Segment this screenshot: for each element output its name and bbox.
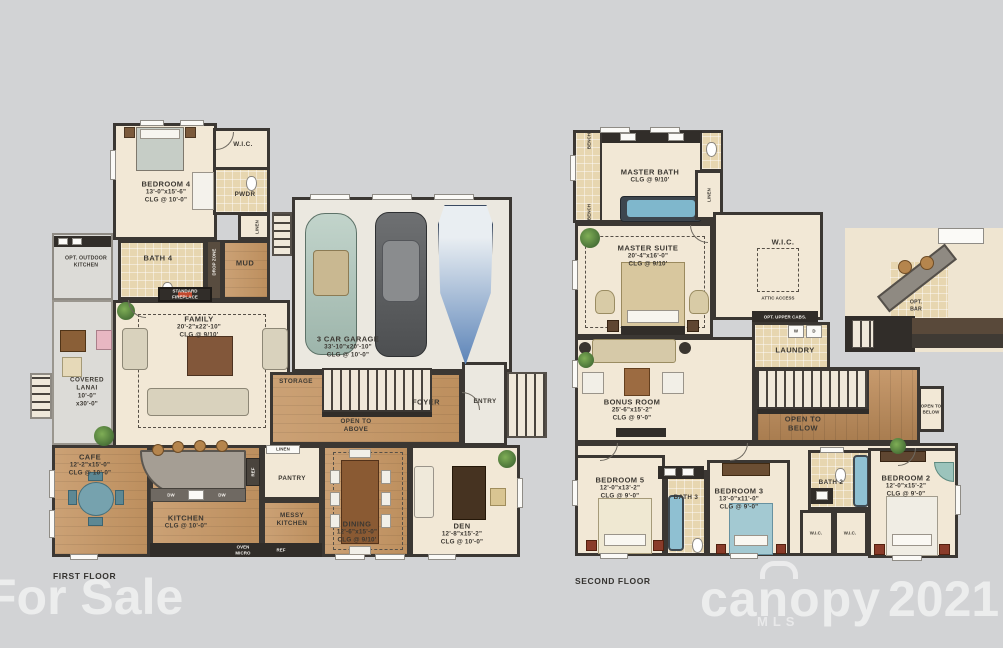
cafe-chair: [68, 490, 77, 505]
plant: [580, 228, 600, 248]
label-ref-island: REF: [250, 467, 256, 476]
foyer-text: FOYER: [412, 397, 440, 406]
sink: [682, 468, 694, 476]
headboard: [621, 326, 685, 335]
attic-access-text: ATTIC ACCESS: [761, 295, 794, 300]
pantry-text: PANTRY: [278, 475, 306, 482]
label-bath3: BATH 3: [674, 494, 699, 502]
bedroom5-name: BEDROOM 5: [595, 475, 644, 484]
bedroom2-clg: CLG @ 9'-0": [881, 491, 930, 499]
outdoor-sink: [72, 238, 82, 245]
cafe-table: [78, 482, 114, 516]
bed-pillows: [140, 129, 180, 139]
side-table: [679, 342, 691, 354]
label-bath2: BATH 2: [819, 479, 844, 487]
nightstand: [716, 544, 726, 554]
label-bedroom2: BEDROOM 2 12'-0"x15'-2" CLG @ 9'-0": [881, 473, 930, 498]
master-bath-clg: CLG @ 9/10': [620, 177, 680, 185]
bedroom5-clg: CLG @ 9'-0": [595, 493, 644, 501]
window: [434, 194, 474, 200]
dw1-text: DW: [167, 492, 175, 497]
nightstand: [586, 540, 597, 551]
armchair: [595, 290, 615, 314]
bedroom5-dims: 12'-0"x13'-2": [595, 485, 644, 493]
bath2-text: BATH 2: [819, 479, 844, 486]
ref-island-text: REF: [250, 467, 255, 476]
family-name: FAMILY: [177, 314, 221, 323]
bed-pillows: [892, 534, 932, 546]
car-seats: [313, 250, 349, 296]
label-master-suite: MASTER SUITE 20'-4"x16'-0" CLG @ 9/10': [618, 243, 679, 268]
window: [517, 478, 523, 508]
opt-outdoor-kitchen-text: OPT. OUTDOOR KITCHEN: [65, 256, 107, 269]
label-dining: DINING 12'-6"x15'-0" CLG @ 9/10': [337, 519, 377, 544]
dining-chair: [330, 470, 340, 484]
cafe-chair: [115, 490, 124, 505]
label-linen-pantry: LINEN: [276, 446, 290, 452]
stool: [172, 441, 184, 453]
armchair: [262, 328, 288, 370]
wic2-text: W.I.C.: [844, 530, 857, 535]
window: [570, 155, 576, 181]
armchair: [662, 372, 684, 394]
bed-pillows: [627, 310, 679, 323]
window: [955, 485, 961, 515]
nightstand: [607, 320, 619, 332]
dryer-text: D: [812, 328, 815, 333]
washer-text: W: [794, 328, 798, 333]
label-drop-zone: DROP ZONE: [211, 249, 217, 276]
garage-dims: 33'-10"x20'-10": [317, 344, 379, 352]
bedroom3-name: BEDROOM 3: [714, 486, 763, 495]
second-floor-caption: SECOND FLOOR: [575, 576, 651, 586]
family-dims: 20'-2"x22'-10": [177, 324, 221, 332]
lanai-name: COVERED LANAI: [61, 376, 113, 392]
plant: [498, 450, 516, 468]
label-pantry: PANTRY: [278, 475, 306, 483]
sink: [664, 468, 676, 476]
linen-hall-text: LINEN: [254, 220, 259, 234]
tub-water: [627, 200, 695, 217]
car-roof: [382, 240, 420, 302]
bedroom4-name: BEDROOM 4: [141, 179, 190, 188]
open-to-below-small-text: OPEN TO BELOW: [921, 404, 941, 415]
label-wic1: W.I.C.: [810, 530, 823, 536]
bonus-sofa: [592, 339, 676, 363]
label-open-to-above: OPEN TO ABOVE: [333, 418, 379, 434]
label-bench2: BENCH: [586, 204, 592, 220]
toilet: [706, 142, 717, 157]
label-messy-kitchen: MESSY KITCHEN: [270, 512, 314, 528]
sink: [620, 133, 636, 141]
den-sofa: [414, 466, 434, 518]
dining-chair: [349, 449, 371, 458]
dw2-text: DW: [218, 492, 226, 497]
bedroom3-dims: 13'-0"x11'-0": [714, 496, 763, 504]
garage-name: 3 CAR GARAGE: [317, 334, 379, 343]
bed-pillows: [734, 535, 768, 546]
lanai-chair: [96, 330, 112, 350]
label-bedroom4: BEDROOM 4 13'-0"x15'-6" CLG @ 10'-0": [141, 179, 190, 204]
den-chair: [490, 488, 506, 506]
bath4-text: BATH 4: [144, 253, 173, 262]
inset-stairs: [852, 320, 874, 348]
label-opt-outdoor-kitchen: OPT. OUTDOOR KITCHEN: [60, 256, 112, 269]
master-suite-name: MASTER SUITE: [618, 243, 679, 252]
toilet: [692, 538, 703, 553]
label-open-to-below-small: OPEN TO BELOW: [920, 404, 942, 415]
wic-master-text: W.I.C.: [772, 237, 795, 246]
dining-chair: [330, 492, 340, 506]
ottoman: [624, 368, 650, 396]
dining-chair: [381, 470, 391, 484]
storage-text: STORAGE: [279, 378, 313, 385]
armchair: [122, 328, 148, 370]
window: [730, 553, 758, 559]
label-mud: MUD: [236, 258, 254, 267]
kitchen-name: KITCHEN: [165, 513, 207, 522]
for-sale-watermark: For Sale: [0, 568, 183, 626]
dining-dims: 12'-6"x15'-0": [337, 529, 377, 537]
label-bench1: BENCH: [586, 133, 592, 149]
label-dryer: D: [812, 328, 815, 334]
bed-pillows: [604, 534, 646, 546]
stool: [152, 444, 164, 456]
window: [428, 554, 456, 560]
lanai-chair: [62, 357, 82, 377]
label-covered-lanai: COVERED LANAI 10'-0" x30'-0": [61, 376, 113, 407]
label-washer: W: [794, 328, 798, 334]
nightstand: [687, 320, 699, 332]
cafe-name: CAFE: [69, 452, 111, 461]
floor-plan-sheet: BEDROOM 4 13'-0"x15'-6" CLG @ 10'-0" W.I…: [0, 0, 1003, 648]
label-wic-master: W.I.C.: [772, 237, 795, 246]
den-dims: 12'-8"x15'-2": [441, 531, 483, 539]
sink: [668, 133, 684, 141]
plant: [578, 352, 594, 368]
lanai-deck-steps: [30, 373, 52, 419]
bench2-text: BENCH: [586, 204, 591, 220]
master-bed: [621, 262, 685, 334]
bedroom4-clg: CLG @ 10'-0": [141, 197, 190, 205]
drop-zone-text: DROP ZONE: [211, 249, 216, 276]
window: [49, 510, 55, 538]
garage-clg: CLG @ 10'-0": [317, 352, 379, 360]
entry-porch-steps: [507, 372, 547, 438]
kitchen-clg: CLG @ 10'-0": [165, 523, 207, 531]
label-den: DEN 12'-8"x15'-2" CLG @ 10'-0": [441, 521, 483, 546]
mls-watermark: MLS: [757, 614, 799, 629]
window: [820, 447, 844, 453]
room-mud: [222, 240, 270, 300]
stool: [216, 440, 228, 452]
year-watermark: 2021: [888, 570, 999, 628]
label-oven-micro: OVEN MICRO: [230, 545, 256, 556]
lanai-dims: 10'-0": [61, 392, 113, 400]
label-bonus: BONUS ROOM 25'-6"x15'-2" CLG @ 9'-0": [604, 397, 661, 422]
wic-first-text: W.I.C.: [233, 141, 253, 148]
den-name: DEN: [441, 521, 483, 530]
open-to-above-text: OPEN TO ABOVE: [340, 418, 371, 433]
tv-console: [616, 428, 666, 437]
window: [110, 150, 116, 180]
window: [572, 260, 578, 290]
label-master-bath: MASTER BATH CLG @ 9/10': [620, 167, 680, 184]
attic-access-outline: [757, 248, 799, 292]
messy-kitchen-text: MESSY KITCHEN: [277, 512, 308, 527]
window: [600, 553, 628, 559]
window: [49, 470, 55, 498]
nightstand: [124, 127, 135, 138]
stair-railing: [322, 412, 432, 417]
stool: [898, 260, 912, 274]
label-linen-hall: LINEN: [254, 220, 260, 234]
nightstand: [939, 544, 950, 555]
cafe-dims: 12'-2"x15'-0": [69, 462, 111, 470]
nightstand: [874, 544, 885, 555]
ref-text: REF: [276, 547, 285, 552]
window: [892, 555, 922, 561]
label-laundry: LAUNDRY: [775, 345, 814, 354]
bonus-dims: 25'-6"x15'-2": [604, 407, 661, 415]
bonus-clg: CLG @ 9'-0": [604, 415, 661, 423]
label-attic-access: ATTIC ACCESS: [761, 295, 794, 301]
oven-micro-text: OVEN MICRO: [235, 545, 250, 556]
dining-chair: [349, 546, 371, 555]
pwdr-text: PWDR: [235, 191, 256, 198]
window: [310, 194, 350, 200]
linen2-text: LINEN: [706, 188, 711, 202]
window: [372, 194, 412, 200]
label-pwdr: PWDR: [235, 191, 256, 199]
opt-bar-text: OPT. BAR: [910, 300, 922, 313]
nightstand: [653, 540, 664, 551]
window: [375, 554, 405, 560]
nightstand: [776, 544, 786, 554]
bath3-text: BATH 3: [674, 494, 699, 501]
armchair: [689, 290, 709, 314]
stool: [920, 256, 934, 270]
entry-text: ENTRY: [473, 398, 496, 405]
coffee-table: [187, 336, 233, 376]
nightstand: [185, 127, 196, 138]
bath2-tub: [853, 455, 869, 507]
label-dw2: DW: [218, 492, 226, 498]
open-to-below-text: OPEN TO BELOW: [785, 415, 821, 433]
label-family: FAMILY 20'-2"x22'-10" CLG @ 9/10': [177, 314, 221, 339]
window: [180, 120, 204, 126]
bonus-name: BONUS ROOM: [604, 397, 661, 406]
label-entry: ENTRY: [473, 398, 496, 406]
label-cafe: CAFE 12'-2"x15'-0" CLG @ 10'-0": [69, 452, 111, 477]
label-open-to-below: OPEN TO BELOW: [775, 415, 831, 434]
bedroom2-dims: 12'-0"x15'-2": [881, 483, 930, 491]
exterior-steps-mud: [272, 212, 292, 256]
master-suite-dims: 20'-4"x16'-0": [618, 253, 679, 261]
bath3-tub: [668, 495, 684, 551]
bedroom2-name: BEDROOM 2: [881, 473, 930, 482]
label-wic2: W.I.C.: [844, 530, 857, 536]
wardrobe: [722, 463, 770, 476]
lanai-dims2: x30'-0": [61, 400, 113, 408]
stair-railing-second: [757, 409, 869, 414]
label-ref: REF: [276, 547, 285, 553]
mud-text: MUD: [236, 258, 254, 267]
family-clg: CLG @ 9/10': [177, 332, 221, 340]
window: [650, 127, 680, 133]
window: [70, 554, 98, 560]
outdoor-grill: [58, 238, 68, 245]
opt-upper-cabs-text: OPT. UPPER CABS.: [764, 314, 807, 319]
armchair: [582, 372, 604, 394]
staircase-second: [757, 369, 869, 409]
label-dw1: DW: [167, 492, 175, 498]
label-opt-bar: OPT. BAR: [904, 300, 928, 313]
window: [600, 127, 630, 133]
label-fireplace: STANDARD FIREPLACE: [162, 289, 208, 300]
sink: [816, 491, 828, 500]
label-bedroom5: BEDROOM 5 12'-0"x13'-2" CLG @ 9'-0": [595, 475, 644, 500]
dining-chair: [381, 492, 391, 506]
plant: [94, 426, 114, 446]
window: [572, 480, 578, 506]
linen-pantry-text: LINEN: [276, 446, 290, 451]
cafe-chair: [88, 517, 103, 526]
laundry-text: LAUNDRY: [775, 345, 814, 354]
fireplace-text: STANDARD FIREPLACE: [172, 289, 198, 300]
bedroom3-clg: CLG @ 9'-0": [714, 504, 763, 512]
den-desk: [452, 466, 486, 520]
island-sink: [188, 490, 204, 500]
armchair: [192, 172, 214, 210]
master-suite-clg: CLG @ 9/10': [618, 261, 679, 269]
cafe-clg: CLG @ 10'-0": [69, 470, 111, 478]
canopy-roof-mark: [760, 561, 798, 579]
label-kitchen: KITCHEN CLG @ 10'-0": [165, 513, 207, 530]
lanai-table: [60, 330, 86, 352]
stool: [194, 440, 206, 452]
window: [140, 120, 164, 126]
window: [572, 360, 578, 388]
inset-counter-wood: [912, 318, 1003, 334]
bedroom4-dims: 13'-0"x15'-6": [141, 189, 190, 197]
dining-clg: CLG @ 9/10': [337, 537, 377, 545]
label-bedroom3: BEDROOM 3 13'-0"x11'-0" CLG @ 9'-0": [714, 486, 763, 511]
label-linen2: LINEN: [706, 188, 712, 202]
label-garage: 3 CAR GARAGE 33'-10"x20'-10" CLG @ 10'-0…: [317, 334, 379, 359]
label-bath4: BATH 4: [144, 253, 173, 262]
label-foyer: FOYER: [412, 397, 440, 406]
toilet: [246, 176, 257, 191]
bed: [886, 496, 938, 556]
bench1-text: BENCH: [586, 133, 591, 149]
dining-name: DINING: [337, 519, 377, 528]
sofa: [147, 388, 249, 416]
wic1-text: W.I.C.: [810, 530, 823, 535]
dining-chair: [381, 514, 391, 528]
inset-counter-dark: [912, 334, 1003, 348]
den-clg: CLG @ 10'-0": [441, 539, 483, 547]
inset-window: [938, 228, 984, 244]
master-bath-name: MASTER BATH: [620, 167, 680, 176]
label-opt-upper-cabs: OPT. UPPER CABS.: [764, 314, 807, 320]
label-wic-first: W.I.C.: [233, 141, 253, 149]
label-storage: STORAGE: [279, 378, 313, 386]
